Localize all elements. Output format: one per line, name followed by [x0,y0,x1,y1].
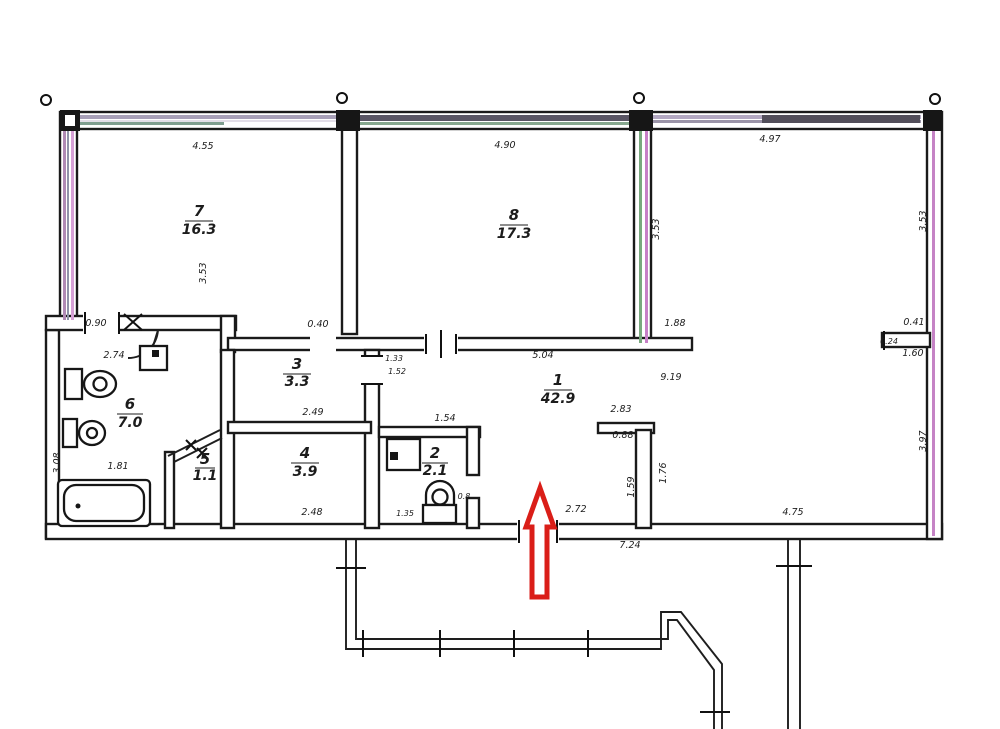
dim-label: 4.55 [192,141,213,152]
dim-label: 4.75 [782,507,803,518]
dim-label: 2.49 [302,407,323,418]
room-number: 5 [200,450,210,468]
dim-label: 4.90 [494,140,515,151]
entrance-arrow [526,488,554,597]
dim-label: 7.24 [619,540,640,551]
dim-label: 2.48 [301,507,322,518]
dim-label: 3.53 [918,210,929,231]
room-area: 17.3 [497,226,532,242]
fixtures [58,369,456,526]
room-number: 7 [194,202,205,220]
dim-label: 1.60 [902,348,923,359]
room-number: 3 [292,355,302,373]
axis-circle [634,93,644,103]
axis-circle [930,94,940,104]
floor-plan-page: 7 16.3 8 17.3 1 42.9 6 7.0 5 1.1 4 3.9 3… [0,0,1000,729]
dim-label: 0.24 [880,337,898,346]
corridor-outline [336,540,812,729]
dim-label: 9.19 [660,372,681,383]
toilet-tank [65,369,82,399]
axis-circle [337,93,347,103]
room-area: 3.9 [293,464,318,480]
dim-label: 0.90 [85,318,106,329]
axis-circle [41,95,51,105]
dim-label: 0.40 [307,319,328,330]
dim-label: 2.72 [565,504,586,515]
room-area: 16.3 [182,222,217,238]
dim-label: 1.76 [658,462,669,483]
dim-label: 1.59 [626,476,637,497]
dim-label: 1.33 [385,354,403,363]
floor-plan-canvas: 7 16.3 8 17.3 1 42.9 6 7.0 5 1.1 4 3.9 3… [0,0,1000,729]
dim-label: 4.97 [759,134,780,145]
room-area: 3.3 [285,374,310,390]
dim-label: 3.08 [52,452,63,473]
room-number: 4 [299,444,310,462]
room-area: 42.9 [540,391,576,407]
dim-label: 2.74 [103,350,124,361]
room-number: 2 [430,444,440,462]
room-area: 2.1 [423,463,448,479]
dim-label: 3.97 [918,430,929,451]
walls [46,112,942,539]
dim-label: 0.8 [458,492,471,501]
room-area: 7.0 [118,415,143,431]
room-number: 8 [509,206,519,224]
dim-label: 1.88 [664,318,685,329]
room-number: 1 [553,371,563,389]
dim-label: 1.54 [434,413,455,424]
dimension-labels-vertical: 3.53 3.53 3.53 3.97 3.08 1.59 1.76 [52,210,929,497]
dim-label: 1.52 [388,367,406,376]
dim-label: 3.53 [198,262,209,283]
dim-label: 3.53 [651,218,662,239]
dim-label: 0.88 [612,430,633,441]
room-number: 6 [125,395,135,413]
dim-label: 1.81 [107,461,128,472]
dim-label: 2.83 [610,404,631,415]
dim-label: 1.35 [396,509,414,518]
dim-label: 0.41 [903,317,924,328]
dim-label: 5.04 [532,350,553,361]
room-area: 1.1 [193,468,218,484]
sink-base [63,419,77,447]
